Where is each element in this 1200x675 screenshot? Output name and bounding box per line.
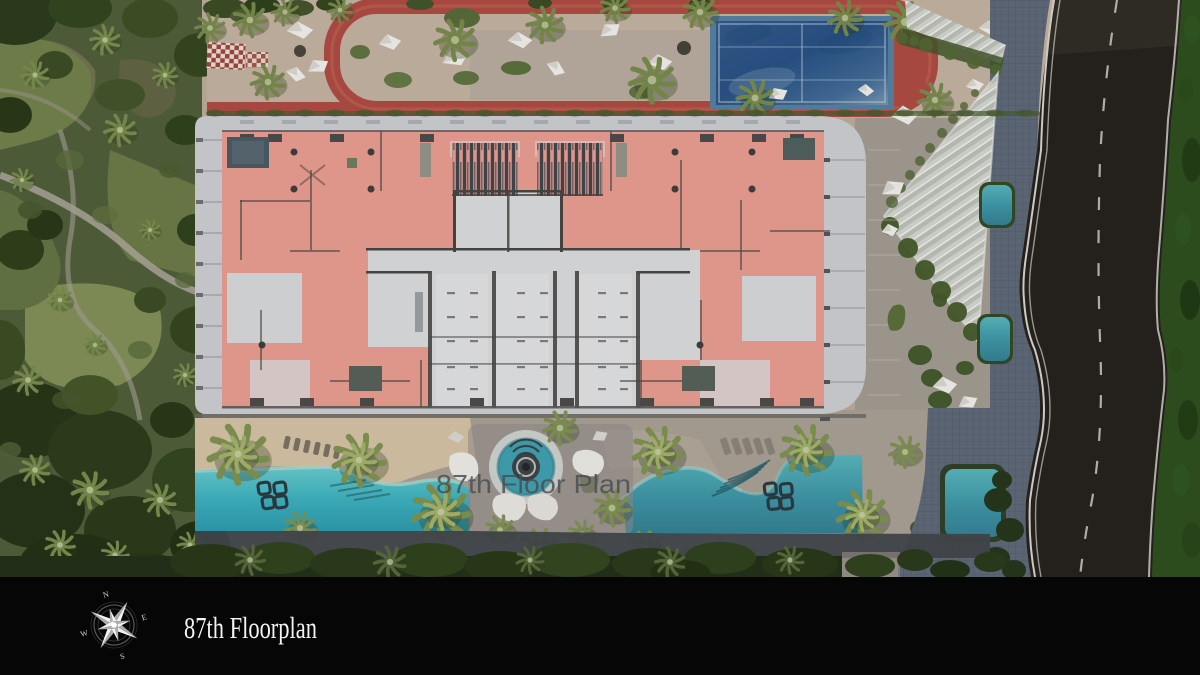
svg-text:87th Floorplan: 87th Floorplan	[184, 610, 317, 645]
